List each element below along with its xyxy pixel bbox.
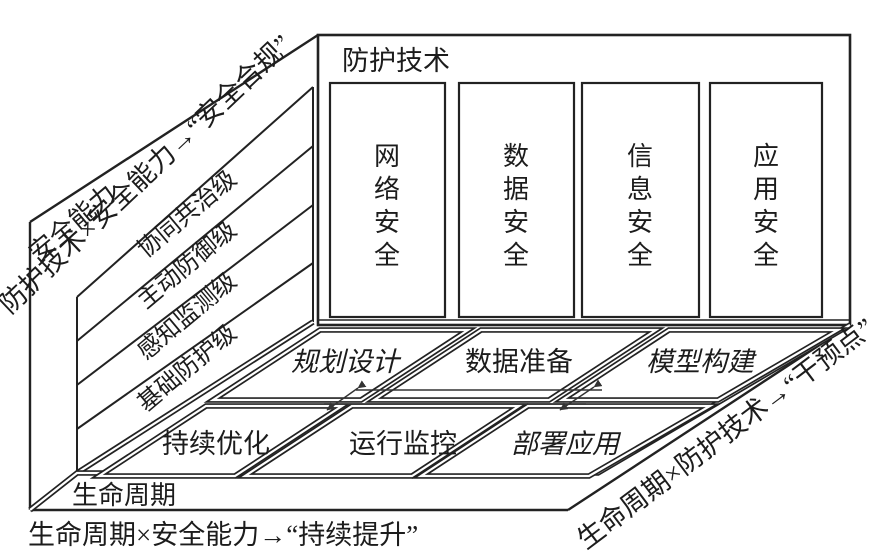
phase-data-preparation: 数据准备 [465,347,573,377]
phase-operation-monitoring: 运行监控 [349,429,457,459]
diagram-canvas: 防护技术 网络安全 数据安全 信息安全 应用安全 安全能力 协同共治级 主动防御… [0,0,885,556]
caption-top-left: 防护技术×安全能力→“安全合规” [0,29,297,319]
security-cube-diagram: 防护技术 网络安全 数据安全 信息安全 应用安全 安全能力 协同共治级 主动防御… [0,0,885,556]
caption-bottom-left: 生命周期×安全能力→“持续提升” [28,520,418,550]
phase-deployment-application: 部署应用 [511,429,622,459]
phase-model-building: 模型构建 [646,347,757,377]
lifecycle-label: 生命周期 [72,481,176,510]
protection-tech-label: 防护技术 [342,46,450,76]
phase-planning-design: 规划设计 [291,347,402,377]
phase-continuous-optimization: 持续优化 [162,429,270,459]
back-wall: 防护技术 网络安全 数据安全 信息安全 应用安全 [313,35,850,325]
